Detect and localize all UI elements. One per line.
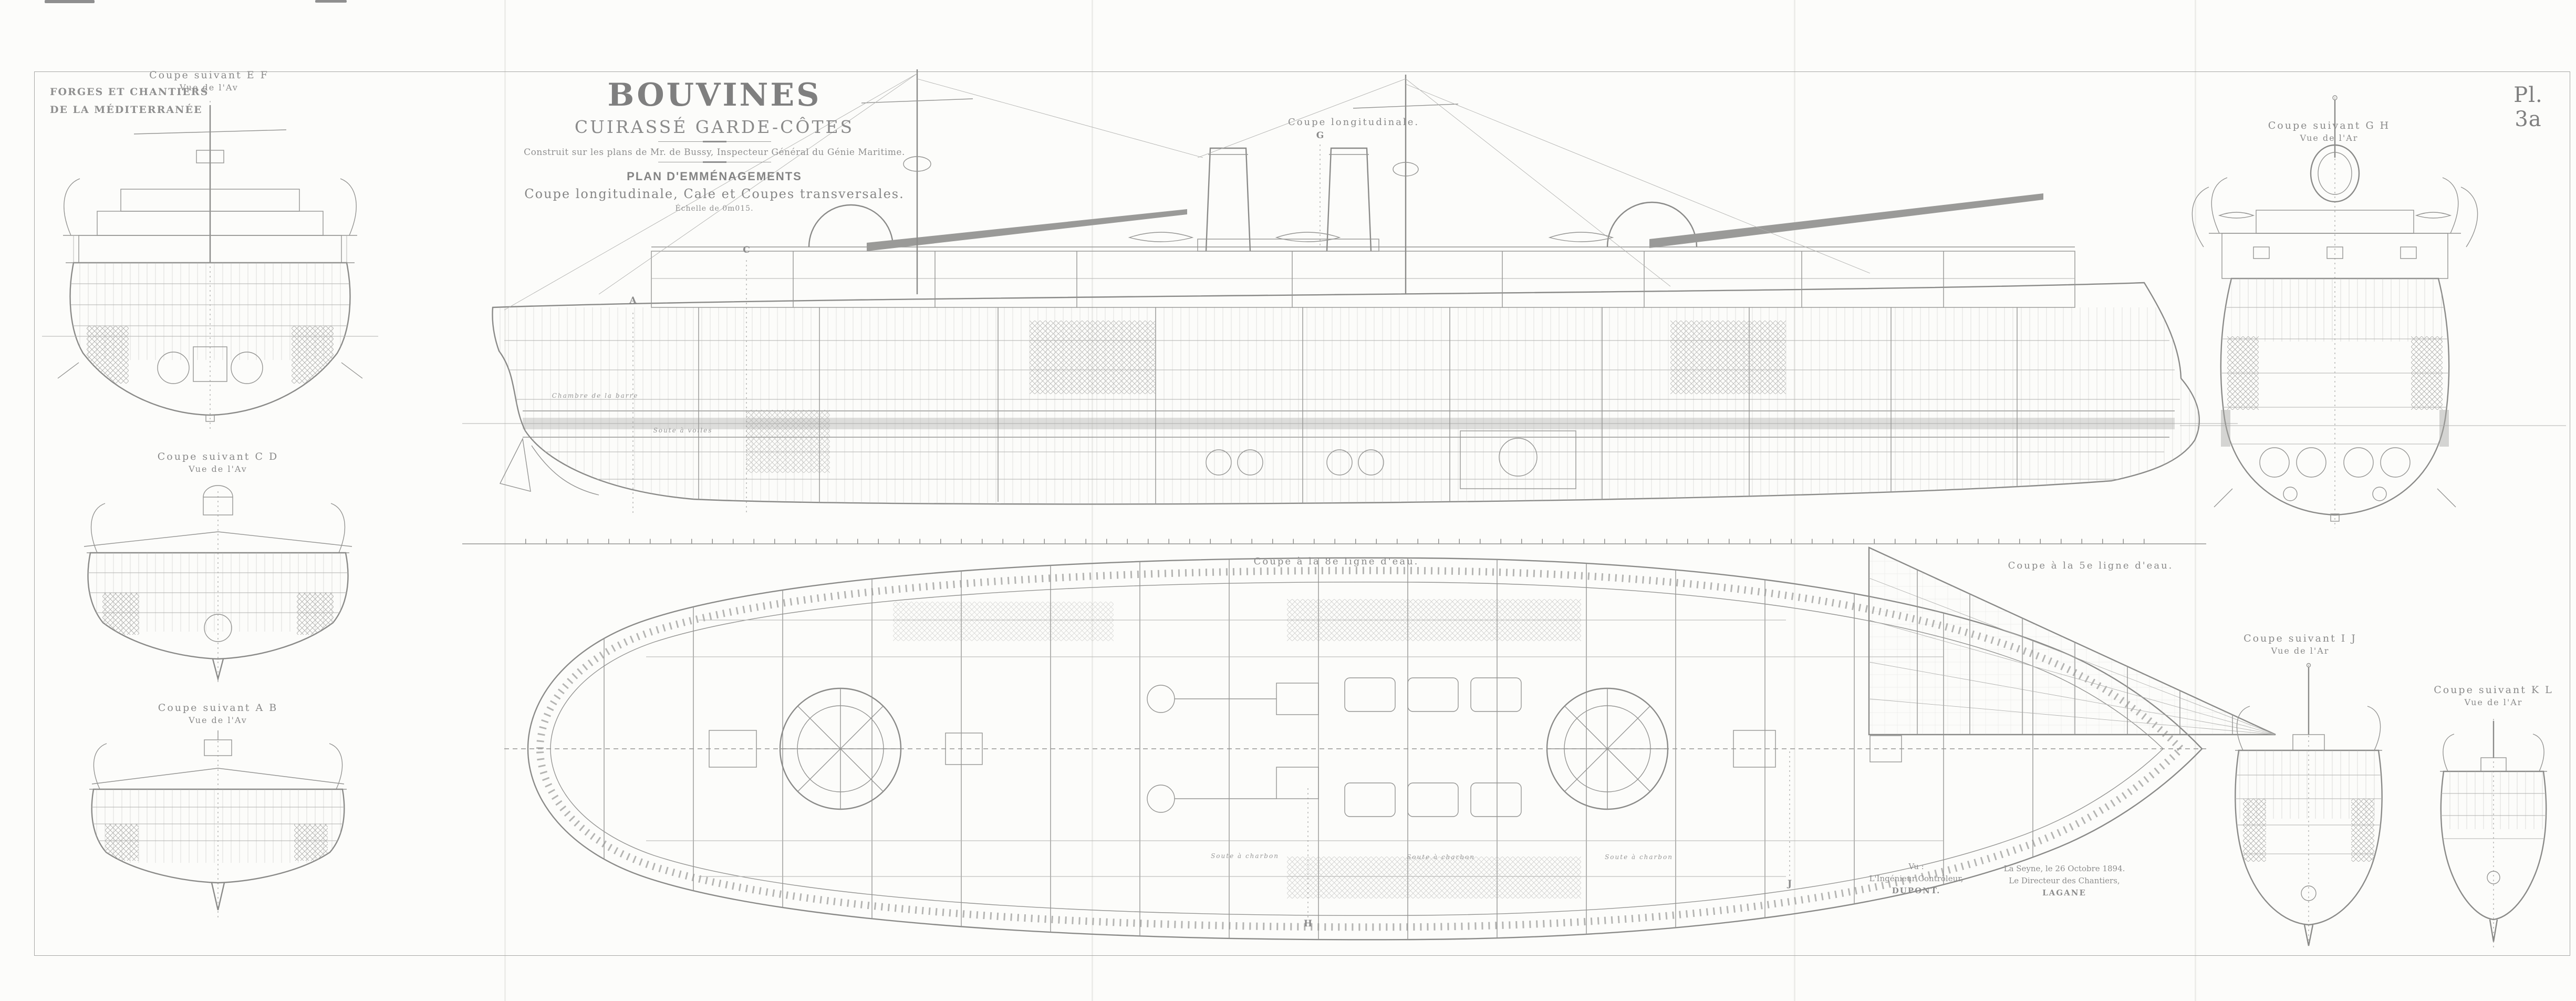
hold-plan-label: Coupe à la 8e ligne d'eau. [1254, 556, 1419, 567]
signature-block-director: La Seyne, le 26 Octobre 1894. Le Directe… [2004, 863, 2125, 899]
title-block: BOUVINES CUIRASSÉ GARDE-CÔTES Construit … [478, 77, 951, 213]
builder-line2: DE LA MÉDITERRANÉE [50, 101, 209, 119]
signature-vu: Vu : [1869, 861, 1963, 873]
section-kl-viewfrom: Vue de l'Ar [2434, 697, 2553, 707]
section-gh-drawing [2180, 96, 2566, 528]
section-ef-title: Coupe suivant E F [149, 69, 269, 81]
blueprint-sheet: FORGES ET CHANTIERS DE LA MÉDITERRANÉE B… [0, 0, 2576, 1001]
barbette-rosette-fore [1547, 688, 1668, 809]
signature-engineer-title: L'Ingénieur Contrôleur, [1869, 873, 1963, 885]
ship-title: BOUVINES [478, 77, 951, 113]
section-ij-label: Coupe suivant I J Vue de l'Ar [2243, 633, 2357, 656]
section-kl-drawing [2437, 719, 2550, 948]
section-ab-label: Coupe suivant A B Vue de l'Av [158, 702, 278, 725]
barbette-rosette-aft [780, 688, 901, 809]
steering-room-label: Chambre de la barre [552, 392, 639, 399]
plan-heading: PLAN D'EMMÉNAGEMENTS [478, 170, 951, 183]
marker-j: J [1788, 879, 1792, 889]
section-cd-title: Coupe suivant C D [158, 451, 279, 462]
attribution-note: Construit sur les plans de Mr. de Bussy,… [478, 147, 951, 158]
ship-plan-drawing [0, 0, 2576, 1001]
section-ef-viewfrom: Vue de l'Av [149, 82, 269, 92]
plan-subheading: Coupe longitudinale, Cale et Coupes tran… [478, 187, 951, 201]
section-ef-drawing [42, 101, 378, 432]
section-cd-viewfrom: Vue de l'Av [158, 464, 279, 474]
waterline5-label: Coupe à la 5e ligne d'eau. [2008, 560, 2174, 571]
signature-block-engineer: Vu : L'Ingénieur Contrôleur, DUPONT. [1869, 861, 1963, 897]
marker-a: A [629, 295, 636, 306]
scale-note: Échelle de 0m015. [478, 204, 951, 213]
section-gh-label: Coupe suivant G H Vue de l'Ar [2268, 120, 2390, 143]
signature-engineer-name: DUPONT. [1869, 885, 1963, 897]
section-ef-label: Coupe suivant E F Vue de l'Av [149, 69, 269, 92]
section-kl-label: Coupe suivant K L Vue de l'Ar [2434, 684, 2553, 707]
ship-subtitle: CUIRASSÉ GARDE-CÔTES [478, 117, 951, 137]
signature-director-title: Le Directeur des Chantiers, [2004, 875, 2125, 887]
section-ij-drawing [2232, 664, 2385, 949]
marker-h: H [1304, 919, 1312, 929]
plate-number: Pl. 3a [2505, 83, 2552, 131]
section-gh-title: Coupe suivant G H [2268, 120, 2390, 131]
section-ij-viewfrom: Vue de l'Ar [2243, 646, 2357, 656]
signature-date-place: La Seyne, le 26 Octobre 1894. [2004, 863, 2125, 875]
waterline5-plan-drawing [1869, 548, 2279, 737]
section-ij-title: Coupe suivant I J [2243, 633, 2357, 644]
coal-bunker-label: Soute à charbon [1211, 852, 1279, 860]
longitudinal-section-label: Coupe longitudinale. [1288, 117, 1419, 128]
title-divider [658, 141, 771, 142]
marker-c: C [743, 245, 750, 255]
section-kl-title: Coupe suivant K L [2434, 684, 2553, 696]
section-cd-label: Coupe suivant C D Vue de l'Av [158, 451, 279, 474]
coal-bunker-label: Soute à charbon [1605, 853, 1673, 861]
coal-bunker-label: Soute à charbon [1407, 853, 1475, 861]
section-ab-drawing [89, 730, 347, 919]
section-ab-viewfrom: Vue de l'Av [158, 715, 278, 725]
sail-room-label: Soute à voiles [653, 427, 713, 434]
marker-g: G [1316, 130, 1324, 141]
title-divider [658, 162, 771, 162]
signature-director-name: LAGANE [2004, 887, 2125, 899]
section-gh-viewfrom: Vue de l'Ar [2268, 133, 2390, 143]
section-ab-title: Coupe suivant A B [158, 702, 278, 714]
section-cd-drawing [84, 486, 352, 684]
